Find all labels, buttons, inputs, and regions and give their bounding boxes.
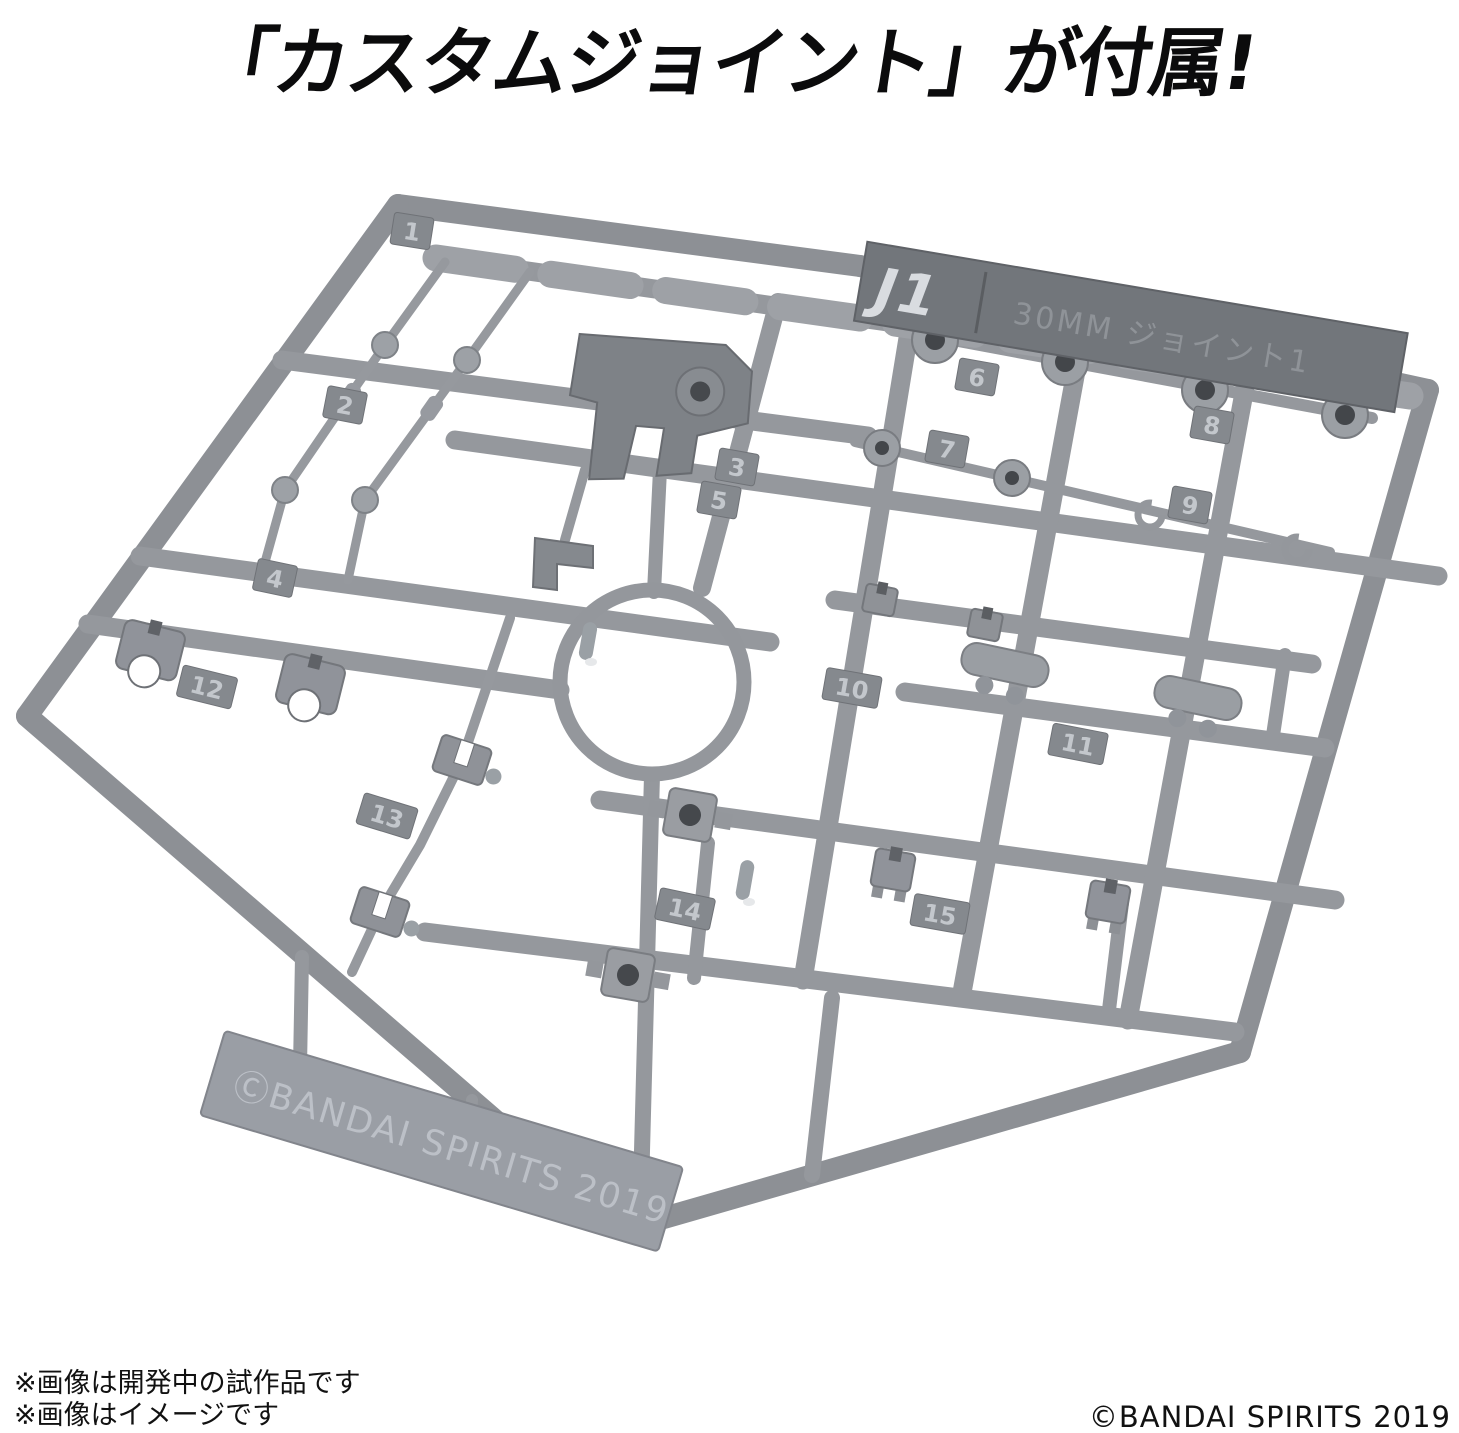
svg-text:15: 15 bbox=[921, 898, 959, 931]
fork-parts-13 bbox=[349, 734, 508, 943]
image-disclaimer-notes: ※画像は開発中の試作品です ※画像はイメージです bbox=[14, 1368, 361, 1432]
sprue-photo: J1 30MM ジョイント1 ⒸBANDAI SPIRITS 2019 1 2 … bbox=[0, 0, 1459, 1433]
part-tag-13: 13 bbox=[356, 793, 419, 840]
disclaimer-line-1: ※画像は開発中の試作品です bbox=[14, 1368, 361, 1400]
part-tag-11: 11 bbox=[1047, 723, 1108, 765]
part-tag-1: 1 bbox=[390, 212, 435, 250]
part-5-bracket bbox=[533, 538, 593, 590]
copyright-text: ©BANDAI SPIRITS 2019 bbox=[1089, 1400, 1451, 1433]
part-tag-10: 10 bbox=[822, 667, 883, 708]
ball-joint bbox=[272, 477, 298, 503]
part-tag-12: 12 bbox=[176, 665, 238, 710]
part-tag-15: 15 bbox=[910, 893, 971, 934]
part-tag-4: 4 bbox=[252, 558, 298, 598]
part-tag-5: 5 bbox=[697, 481, 742, 519]
ball-joint bbox=[352, 487, 378, 513]
svg-text:10: 10 bbox=[833, 672, 871, 705]
part-tag-8: 8 bbox=[1190, 406, 1235, 444]
product-photo-page: 「カスタムジョイント」が付属! bbox=[0, 0, 1459, 1433]
peg-part bbox=[735, 859, 756, 901]
ball-joint bbox=[372, 332, 398, 358]
part-tag-3: 3 bbox=[715, 448, 760, 486]
disclaimer-line-2: ※画像はイメージです bbox=[14, 1400, 361, 1432]
part-tag-7: 7 bbox=[925, 430, 970, 468]
part-tag-6: 6 bbox=[955, 358, 1000, 396]
part-tag-2: 2 bbox=[322, 385, 367, 424]
saddle-parts-12 bbox=[111, 614, 348, 729]
runner-id-plate: J1 30MM ジョイント1 bbox=[854, 242, 1408, 412]
part-tag-9: 9 bbox=[1168, 486, 1213, 524]
ball-joint bbox=[454, 347, 480, 373]
